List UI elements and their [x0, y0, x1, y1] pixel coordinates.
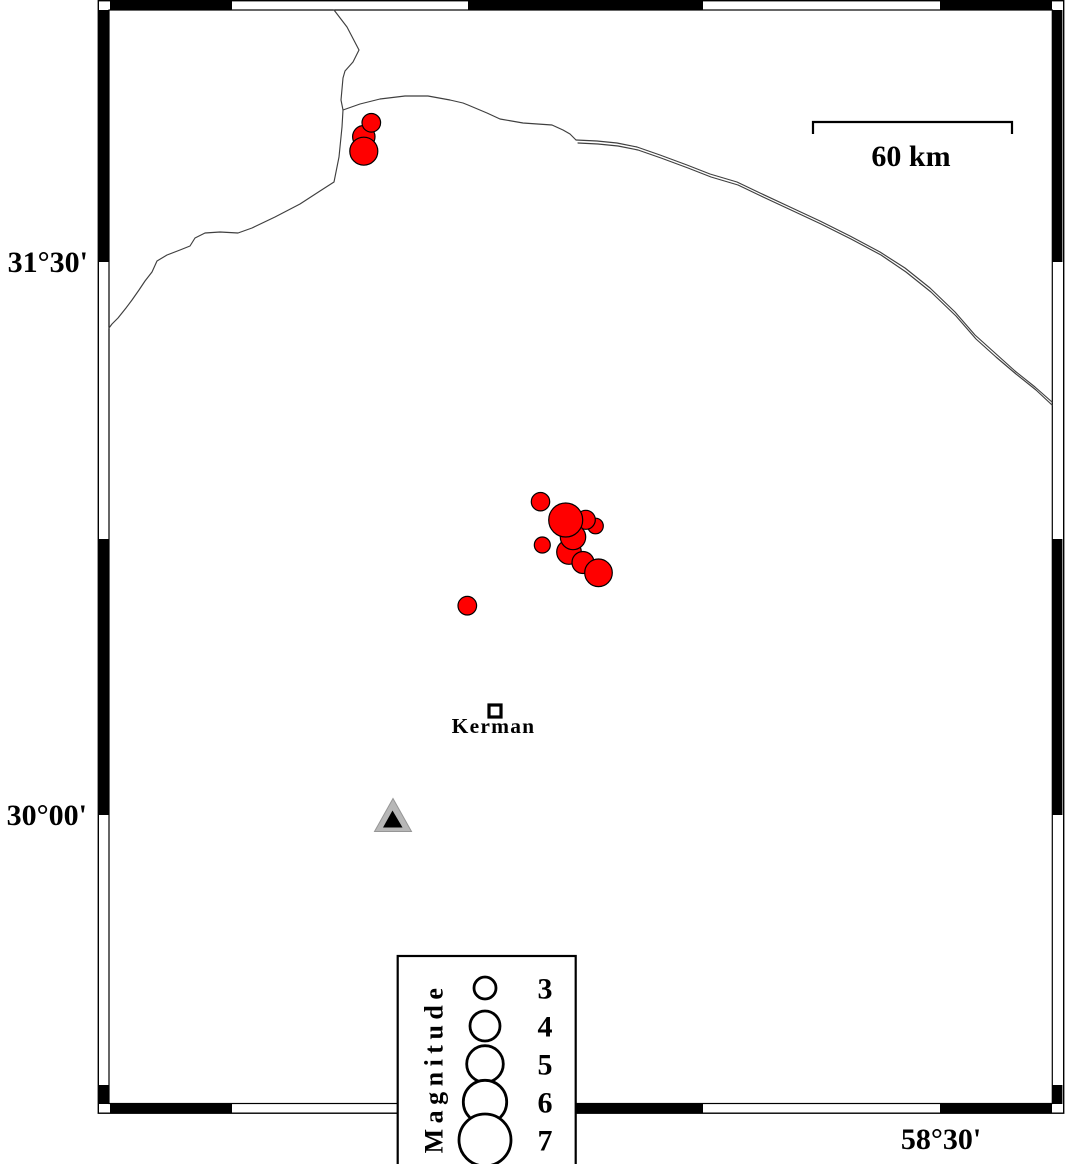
map-canvas: Kerman 60 km 31°30' 30°00' 58°30' Magnit…	[0, 0, 1066, 1164]
lon-label-bottom: 58°30'	[901, 1123, 981, 1156]
lat-label-lower: 30°00'	[7, 799, 87, 832]
frame-segment-bottom	[110, 1104, 232, 1114]
frame-segment-left	[99, 1085, 109, 1104]
frame-segment-right	[1052, 1085, 1062, 1104]
legend-magnitude-label: 3	[538, 973, 553, 1006]
legend-magnitude-circle	[467, 1046, 504, 1083]
frame-segment-top	[940, 1, 1052, 10]
boundary-line-west	[109, 10, 359, 328]
frame-segment-top	[110, 1, 232, 10]
frame-segment-top	[468, 1, 703, 10]
epicenter-map-figure: Kerman 60 km 31°30' 30°00' 58°30' Magnit…	[0, 0, 1066, 1164]
frame-segment-left	[99, 10, 109, 262]
lat-label-upper: 31°30'	[8, 246, 88, 279]
legend-magnitude-circle	[470, 1011, 500, 1041]
road-line-upper	[576, 140, 1052, 402]
legend-magnitude-label: 4	[538, 1011, 553, 1044]
legend-magnitude-label: 6	[538, 1087, 553, 1120]
earthquake-marker	[531, 493, 549, 511]
frame-segment-bottom	[940, 1104, 1052, 1114]
scale-bar-label: 60 km	[871, 140, 950, 173]
earthquake-marker	[585, 559, 613, 587]
earthquake-epicenters	[350, 114, 613, 616]
frame-segment-right	[1052, 10, 1062, 262]
scale-bar: 60 km	[813, 122, 1012, 173]
legend-title: Magnitude	[420, 983, 449, 1154]
earthquake-marker	[534, 537, 550, 553]
legend-magnitude-label: 5	[538, 1049, 553, 1082]
earthquake-marker	[549, 503, 583, 537]
legend-magnitude-circle	[474, 977, 496, 999]
map-lines	[109, 10, 1052, 405]
station-marker	[375, 799, 412, 832]
magnitude-legend: Magnitude 34567	[398, 956, 576, 1164]
road-line-lower	[578, 143, 1052, 405]
city-marker-kerman: Kerman	[452, 705, 536, 738]
frame-segment-left	[99, 539, 109, 815]
legend-magnitude-circle	[459, 1114, 511, 1164]
frame-segment-right	[1052, 539, 1062, 815]
legend-magnitude-label: 7	[538, 1125, 553, 1158]
scale-bar-bracket	[813, 122, 1012, 134]
earthquake-marker	[458, 596, 477, 615]
city-label: Kerman	[452, 714, 536, 738]
earthquake-marker	[350, 137, 378, 165]
earthquake-marker	[362, 114, 381, 133]
